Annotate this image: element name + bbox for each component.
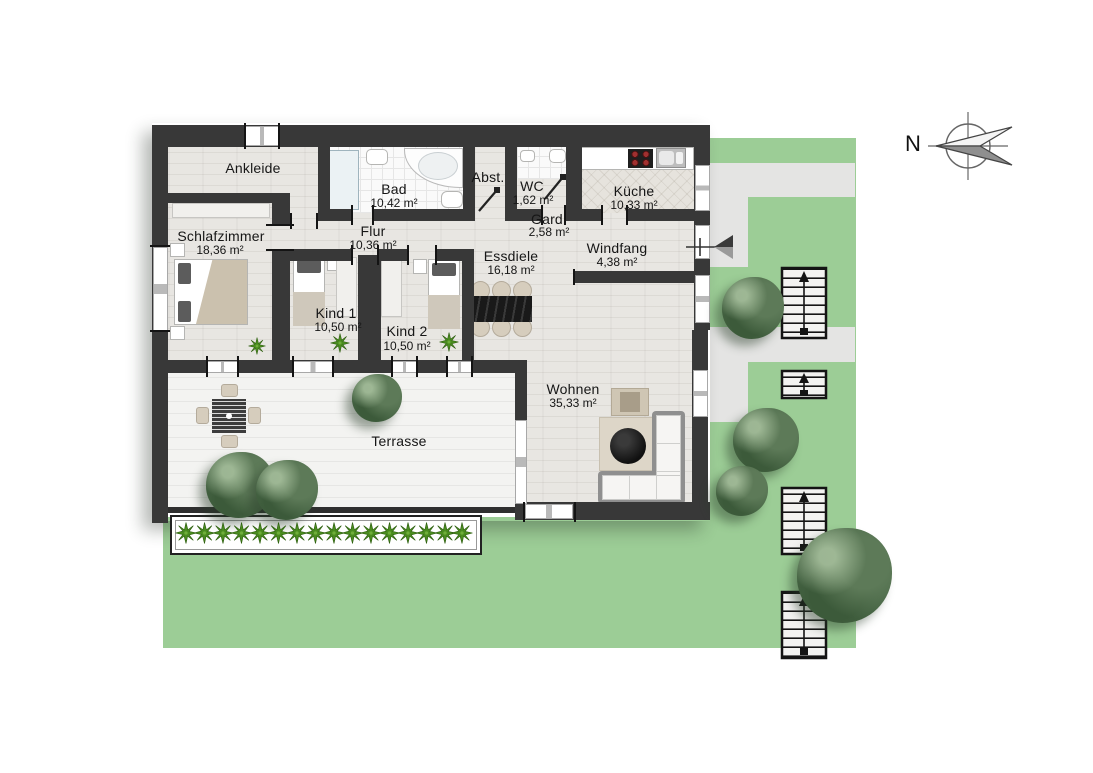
tree-large — [797, 528, 892, 623]
sink-basin — [659, 151, 674, 165]
room-area-garderobe: 2,58 m² — [529, 225, 570, 239]
wall-kind-divider — [358, 255, 381, 365]
room-area-wc: 1,62 m² — [513, 193, 554, 207]
room-label-bad: Bad — [381, 181, 407, 197]
nightstand — [413, 259, 427, 274]
pillow — [297, 260, 321, 273]
door-kind2-terrasse — [392, 361, 417, 373]
floor-plan: N Ankleide Bad 10,42 m² Abst. WC 1,62 m²… — [0, 0, 1093, 773]
room-label-abstellraum: Abst. — [472, 169, 505, 185]
room-area-essdiele: 16,18 m² — [487, 263, 534, 277]
nightstand — [170, 326, 185, 340]
walkway-middle — [710, 327, 855, 362]
armchair-seat — [620, 392, 640, 412]
window-terrasse-wohnen — [515, 420, 527, 504]
bad-sink — [366, 149, 388, 165]
room-label-wohnen: Wohnen — [546, 381, 599, 397]
wall-kind2-east — [462, 249, 474, 368]
room-area-kind2: 10,50 m² — [383, 339, 430, 353]
dining-table — [470, 296, 532, 322]
walkway-entrance — [710, 197, 748, 267]
wall-windfang — [575, 271, 694, 283]
wall-schlafzimmer-east — [272, 193, 290, 225]
room-area-windfang: 4,38 m² — [597, 255, 638, 269]
pillow — [178, 301, 191, 322]
coffee-table — [610, 428, 646, 464]
room-area-kueche: 10,33 m² — [610, 198, 657, 212]
walkway-top — [710, 163, 855, 197]
terrace-chair — [196, 407, 209, 424]
window-schlafzimmer-sued — [207, 361, 238, 373]
terrace-table-dot — [226, 413, 232, 419]
room-label-terrasse: Terrasse — [371, 433, 426, 449]
wall-east-lower — [692, 330, 708, 517]
wall-ankleide-south — [152, 193, 274, 203]
bed-blanket — [428, 295, 460, 329]
wall-bad-south — [327, 209, 352, 221]
pillow — [178, 263, 191, 284]
room-area-schlafzimmer: 18,36 m² — [196, 243, 243, 257]
room-area-kind1: 10,50 m² — [314, 320, 361, 334]
room-label-wc: WC — [520, 178, 544, 194]
wall-abst-wc — [505, 147, 517, 221]
terrace-chair — [221, 384, 238, 397]
nightstand — [170, 243, 185, 257]
toilet — [441, 191, 463, 208]
stove — [628, 149, 653, 168]
entrance-door-gap — [695, 225, 710, 259]
room-area-wohnen: 35,33 m² — [549, 396, 596, 410]
room-area-flur: 10,36 m² — [349, 238, 396, 252]
room-label-windfang: Windfang — [587, 240, 648, 256]
bathtub-inner — [418, 152, 458, 180]
wall-kueche-south — [582, 209, 602, 221]
window-top — [245, 126, 279, 146]
wall-terrasse-wohnen — [515, 360, 527, 422]
room-label-schlafzimmer: Schlafzimmer — [177, 228, 264, 244]
sink-basin — [676, 152, 683, 164]
window-east-2 — [695, 275, 710, 323]
compass-icon — [928, 112, 1012, 180]
room-label-essdiele: Essdiele — [484, 248, 539, 264]
wall-bad-south — [373, 209, 463, 221]
room-area-bad: 10,42 m² — [370, 196, 417, 210]
window-east-wohnen — [693, 370, 708, 417]
room-label-flur: Flur — [361, 223, 386, 239]
wc-sink — [520, 150, 535, 162]
wardrobe-kind2 — [381, 257, 402, 317]
shower — [329, 150, 359, 210]
window-east-1 — [695, 165, 710, 211]
terrace-chair — [248, 407, 261, 424]
planter-box — [170, 515, 482, 555]
compass-north-label: N — [905, 131, 921, 157]
door-essdiele-terrasse — [447, 361, 472, 373]
wc-toilet — [549, 149, 566, 163]
pillow — [432, 263, 456, 276]
window-kind1-sued — [293, 361, 333, 373]
room-label-kind2: Kind 2 — [387, 323, 428, 339]
wall-flur-south — [290, 249, 352, 261]
room-label-ankleide: Ankleide — [225, 160, 280, 176]
wall-top — [152, 125, 710, 147]
wall-wc-kueche — [566, 147, 582, 221]
room-label-kueche: Küche — [614, 183, 655, 199]
wall-schlafzimmer-east — [272, 250, 290, 365]
wardrobe-schlafzimmer — [172, 203, 270, 218]
walkway-side — [710, 362, 748, 422]
window-sued-wohnen — [525, 504, 573, 519]
window-west-schlafzimmer — [153, 247, 168, 331]
sofa-cushions — [602, 475, 681, 500]
room-label-kind1: Kind 1 — [316, 305, 357, 321]
terrace-chair — [221, 435, 238, 448]
